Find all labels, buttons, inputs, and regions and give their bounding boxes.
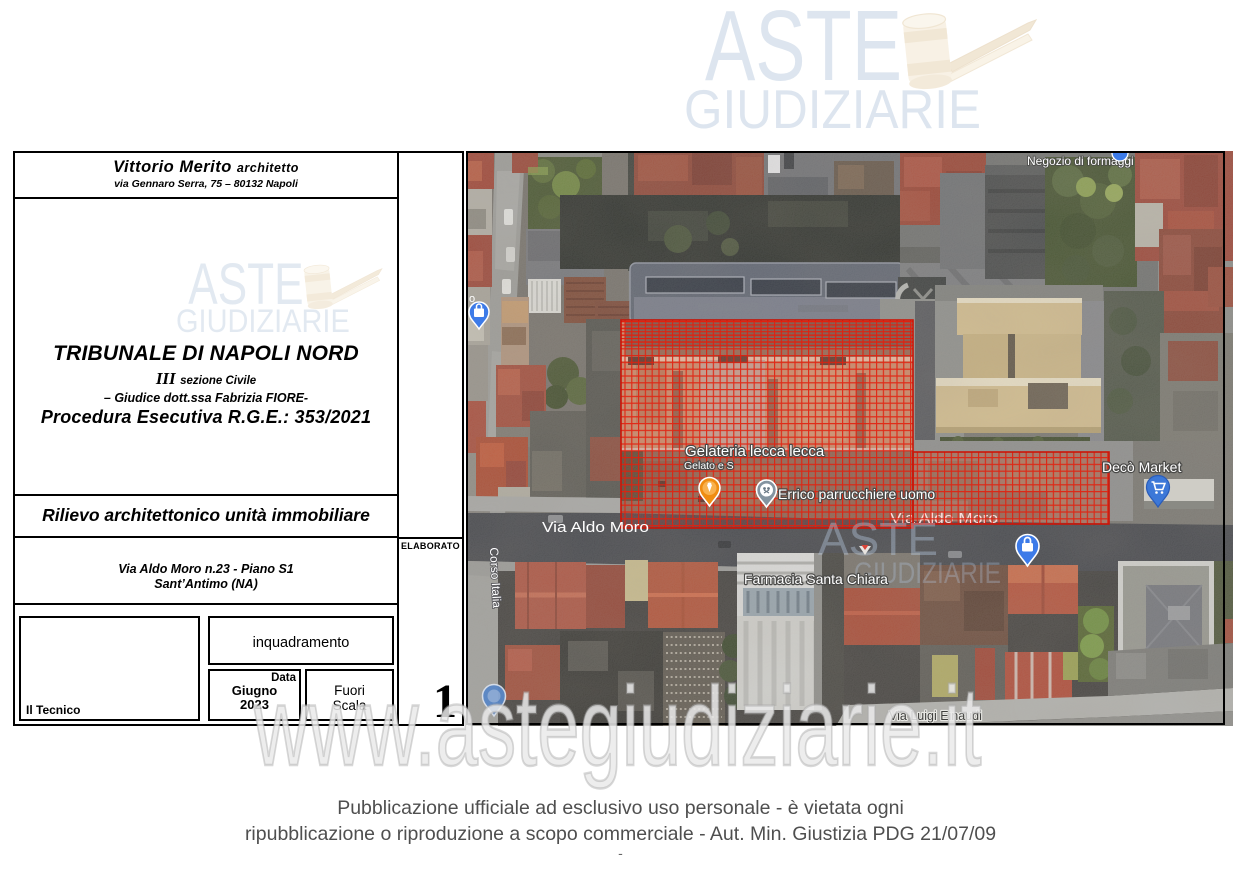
svg-text:Decò Market: Decò Market: [1102, 459, 1181, 475]
svg-text:Errico parrucchiere uomo: Errico parrucchiere uomo: [778, 486, 935, 502]
svg-text:Gelato e S: Gelato e S: [684, 460, 734, 472]
svg-text:Gelateria lecca lecca: Gelateria lecca lecca: [685, 443, 825, 460]
svg-text:Farmacia Santa Chiara: Farmacia Santa Chiara: [744, 571, 888, 587]
svg-text:Via Luigi Einaudi: Via Luigi Einaudi: [889, 709, 982, 723]
svg-text:Via Aldo Moro: Via Aldo Moro: [542, 520, 649, 536]
